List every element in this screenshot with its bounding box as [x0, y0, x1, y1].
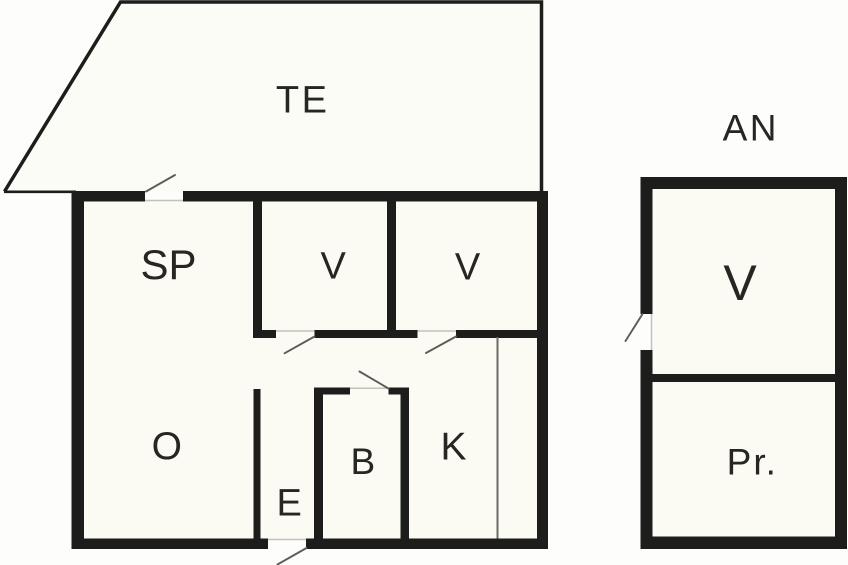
svg-text:E: E — [277, 482, 302, 524]
svg-text:Pr.: Pr. — [727, 441, 778, 482]
svg-text:V: V — [321, 246, 347, 288]
svg-text:TE: TE — [276, 80, 330, 122]
svg-text:V: V — [455, 247, 481, 289]
svg-text:SP: SP — [140, 241, 196, 288]
svg-text:O: O — [152, 425, 182, 468]
svg-text:B: B — [350, 441, 375, 482]
svg-text:K: K — [440, 426, 466, 469]
svg-text:V: V — [723, 255, 757, 311]
svg-text:AN: AN — [723, 108, 779, 149]
